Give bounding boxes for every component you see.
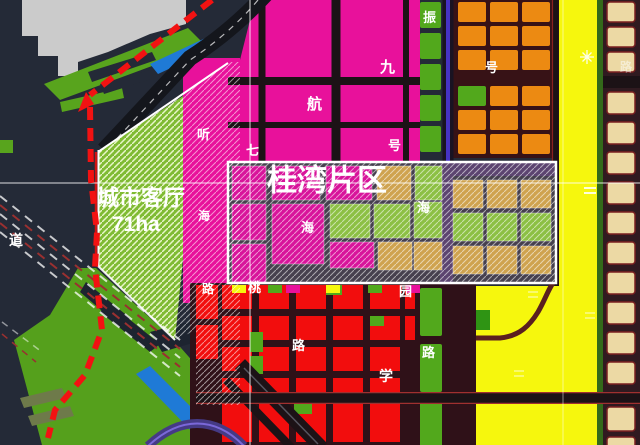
east-tan-blocks-mid-cell (607, 362, 635, 384)
street-label-zhen: 振 (423, 10, 436, 25)
green-sliver-east (597, 0, 603, 445)
street-label-hai-2: 海 (301, 220, 314, 235)
district-title: 桂湾片区 (267, 164, 387, 198)
green-blocks-column-north-cell (420, 95, 441, 121)
orange-blocks-upper-cell (490, 2, 518, 22)
street-label-tao: 桃 (248, 280, 261, 295)
orange-blocks-lower-cell (490, 86, 518, 106)
red-blocks-cell (259, 347, 289, 371)
strip-cell-4 (286, 285, 300, 293)
red-blocks-bottom-cell (333, 404, 363, 442)
street-label-hao-1: 号 (485, 60, 498, 75)
orange-blocks-upper-cell (490, 26, 518, 46)
street-label-hang: 航 (307, 95, 322, 113)
green-blocks-column-south-cell (420, 288, 442, 336)
yellow-corridor (559, 0, 597, 288)
east-tan-blocks-bottom-cell (607, 407, 635, 431)
east-tan-blocks-top-cell (607, 2, 635, 22)
orange-blocks-lower-cell (490, 134, 518, 154)
street-label-lu-2: 路 (292, 338, 306, 353)
east-road-gap (603, 76, 640, 88)
east-tan-blocks-mid-cell (607, 272, 635, 294)
street-label-lu-3: 路 (422, 345, 436, 360)
green-blocks-column-north-cell (420, 33, 441, 59)
city-hall-area-label: 71ha (112, 213, 160, 236)
green-blocks-column-north-cell (420, 64, 441, 90)
red-blocks-bottom-cell (370, 404, 400, 442)
street-label-jiu: 九 (379, 58, 395, 76)
east-tan-blocks-mid-cell (607, 122, 635, 144)
strip-cell-3 (268, 285, 282, 293)
orange-blocks-upper-cell (458, 26, 486, 46)
street-label-ting: 听 (197, 127, 210, 142)
strip-cell-6 (326, 285, 340, 293)
street-label-hai-1: 海 (198, 208, 210, 223)
east-tan-blocks-mid-cell (607, 332, 635, 354)
orange-blocks-lower-cell (522, 134, 550, 154)
east-tan-blocks-bottom-cell (607, 437, 635, 445)
east-tan-blocks-mid-cell (607, 152, 635, 174)
green-blocks-column-north-cell (420, 126, 441, 152)
street-label-hai-3: 海 (417, 200, 430, 215)
street-label-lu-east: 路 (620, 59, 633, 74)
street-label-lu-1: 路 (202, 281, 215, 296)
green-accent-2 (370, 316, 384, 326)
orange-blocks-upper-cell (458, 50, 486, 70)
orange-blocks-upper-cell (522, 2, 550, 22)
orange-blocks-lower-cell (458, 134, 486, 154)
red-blocks-cell (333, 316, 363, 340)
east-tan-blocks-mid-cell (607, 182, 635, 204)
strip-cell-8 (368, 285, 382, 293)
east-tan-blocks-top-cell (607, 27, 635, 47)
red-block-east-2 (405, 316, 415, 340)
planning-map-canvas: 振九号路航号听七海海海道路桃园路学路桂湾片区城市客厅71ha (0, 0, 640, 445)
east-tan-blocks-mid-cell (607, 212, 635, 234)
city-hall-label: 城市客厅 (97, 186, 185, 211)
red-blocks-cell (259, 316, 289, 340)
strip-cell-7 (348, 285, 362, 293)
orange-blocks-upper-cell (522, 26, 550, 46)
red-blocks-cell (296, 316, 326, 340)
street-label-qi: 七 (246, 143, 259, 158)
red-blocks-cell (333, 347, 363, 371)
green-edge-left (0, 140, 13, 153)
east-tan-blocks-mid-cell (607, 302, 635, 324)
east-tan-blocks-mid-cell (607, 92, 635, 114)
orange-blocks-upper-cell (458, 2, 486, 22)
green-accent-3 (250, 332, 263, 352)
orange-blocks-lower-cell (490, 110, 518, 130)
planning-map: 振九号路航号听七海海海道路桃园路学路桂湾片区城市客厅71ha (0, 0, 640, 445)
orange-blocks-lower-cell (522, 110, 550, 130)
street-label-yuan: 园 (399, 284, 412, 299)
strip-cell-5 (306, 285, 320, 293)
street-label-hao-2: 号 (388, 138, 401, 153)
east-tan-blocks-mid-cell (607, 242, 635, 264)
street-label-dao: 道 (9, 232, 23, 248)
orange-blocks-lower-cell (458, 110, 486, 130)
green-blocks-column-south-cell (420, 400, 442, 445)
orange-blocks-lower-cell (458, 86, 486, 106)
street-label-xue: 学 (379, 368, 393, 384)
orange-blocks-lower-cell (522, 86, 550, 106)
orange-blocks-upper-cell (522, 50, 550, 70)
